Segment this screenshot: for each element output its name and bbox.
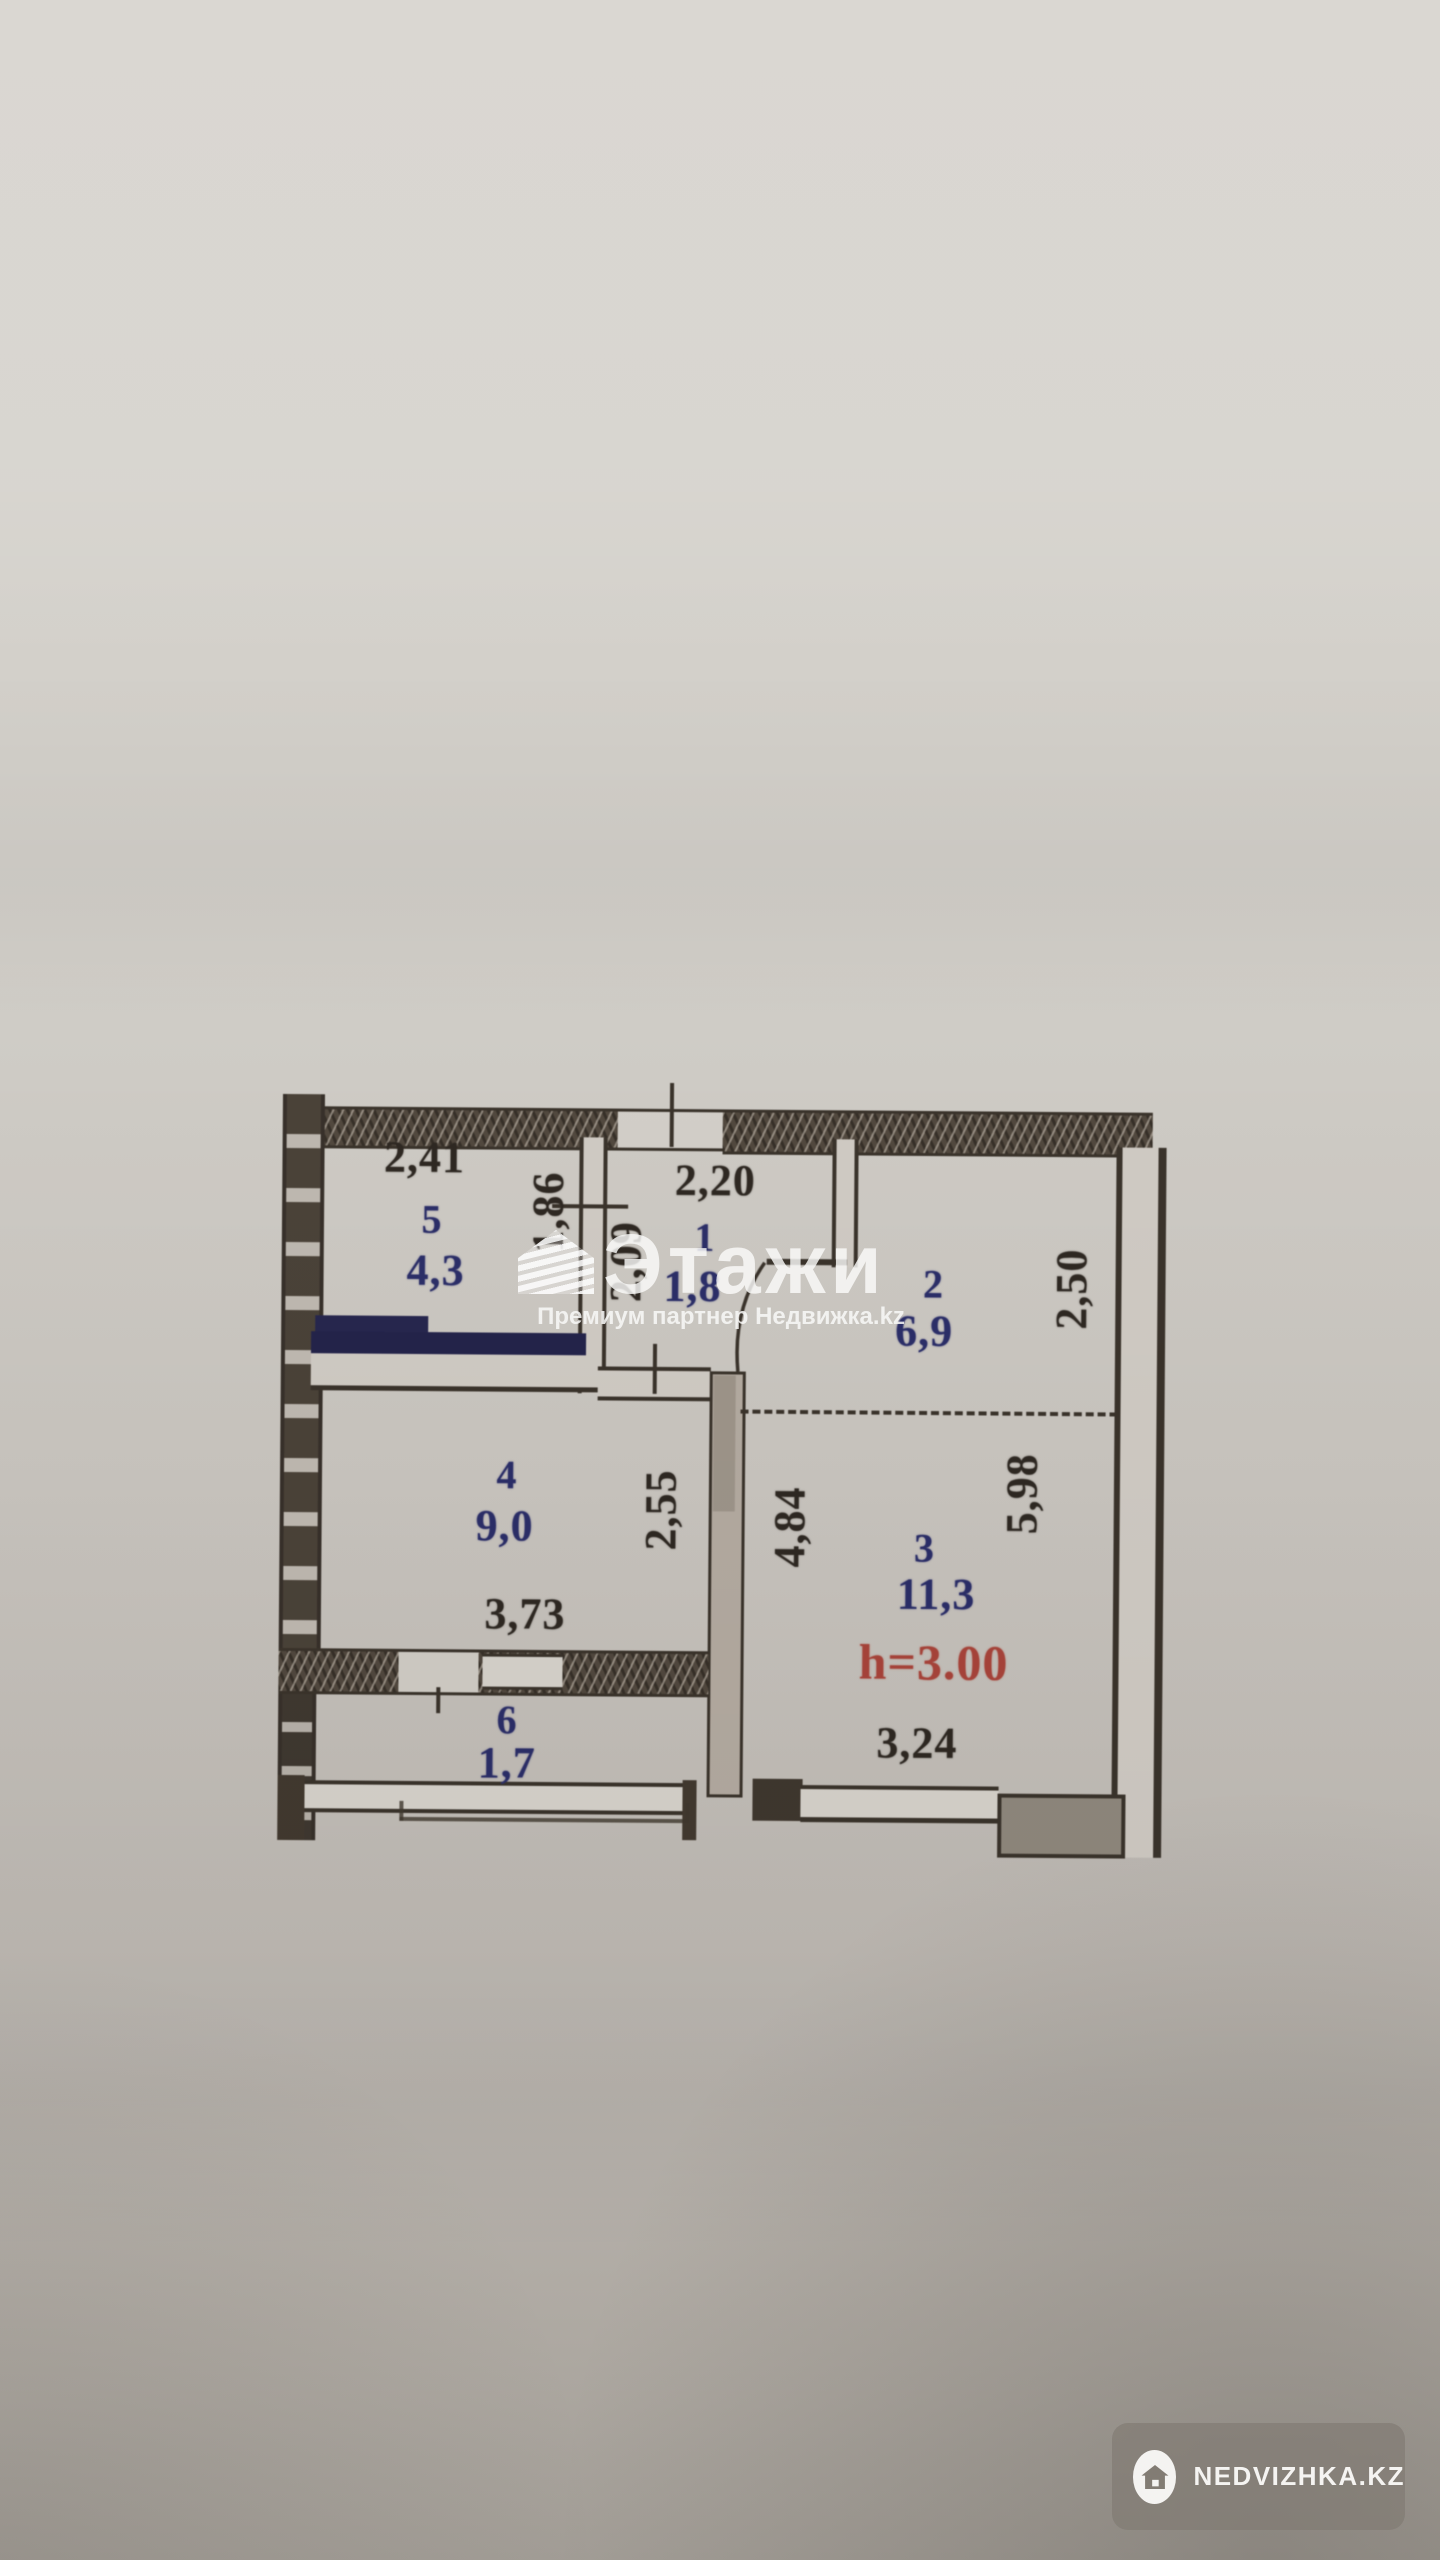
room4-number: 4 <box>496 1451 517 1498</box>
floor-plan-photo: 5 4,3 1 1,8 2 6,9 4 9,0 3 11,3 6 1,7 2,4… <box>0 0 1440 2560</box>
dim-room1-depth: 2,09 <box>600 1221 652 1302</box>
room5-number: 5 <box>421 1196 442 1243</box>
nedvizhka-badge: NEDVIZHKA.KZ <box>1112 2423 1405 2530</box>
room3-number: 3 <box>914 1524 935 1571</box>
room2-area: 6,9 <box>895 1305 953 1356</box>
dim-room2-depth: 2,50 <box>1046 1248 1098 1329</box>
dim-room3-left-depth: 4,84 <box>764 1486 816 1567</box>
dimension-tick-room6 <box>436 1687 440 1713</box>
bottom-right-corner-wall <box>997 1794 1125 1859</box>
ceiling-height-label: h=3.00 <box>858 1632 1008 1691</box>
room3-window-pier <box>752 1779 802 1821</box>
room1-number: 1 <box>694 1214 715 1261</box>
house-icon <box>1138 2460 1172 2494</box>
balcony-outer-edge-left-tie <box>399 1801 403 1821</box>
badge-circle <box>1133 2450 1176 2504</box>
room4-area: 9,0 <box>475 1500 533 1551</box>
balcony-corner-left <box>277 1775 305 1840</box>
floor-plan-drawing: 5 4,3 1 1,8 2 6,9 4 9,0 3 11,3 6 1,7 2,4… <box>0 0 1440 2560</box>
dim-hall-wall-upper: 1,86 <box>522 1171 574 1252</box>
dim-room3-width: 3,24 <box>876 1717 957 1769</box>
room5-area: 4,3 <box>406 1244 464 1295</box>
room3-bottom-window <box>800 1785 998 1824</box>
dim-room5-width: 2,41 <box>384 1131 465 1183</box>
room3-area: 11,3 <box>897 1568 976 1620</box>
balcony-outer-edge-right-tie <box>685 1803 689 1823</box>
room6-area: 1,7 <box>478 1737 536 1788</box>
room1-area: 1,8 <box>663 1260 721 1311</box>
room2-number: 2 <box>923 1260 944 1307</box>
badge-label: NEDVIZHKA.KZ <box>1193 2461 1405 2492</box>
dim-room4-depth: 2,55 <box>635 1469 687 1550</box>
dim-room4-width: 3,73 <box>484 1588 565 1640</box>
dim-room3-right-depth: 5,98 <box>996 1453 1048 1534</box>
dim-room1-width: 2,20 <box>675 1155 756 1207</box>
balcony-window <box>482 1654 562 1691</box>
